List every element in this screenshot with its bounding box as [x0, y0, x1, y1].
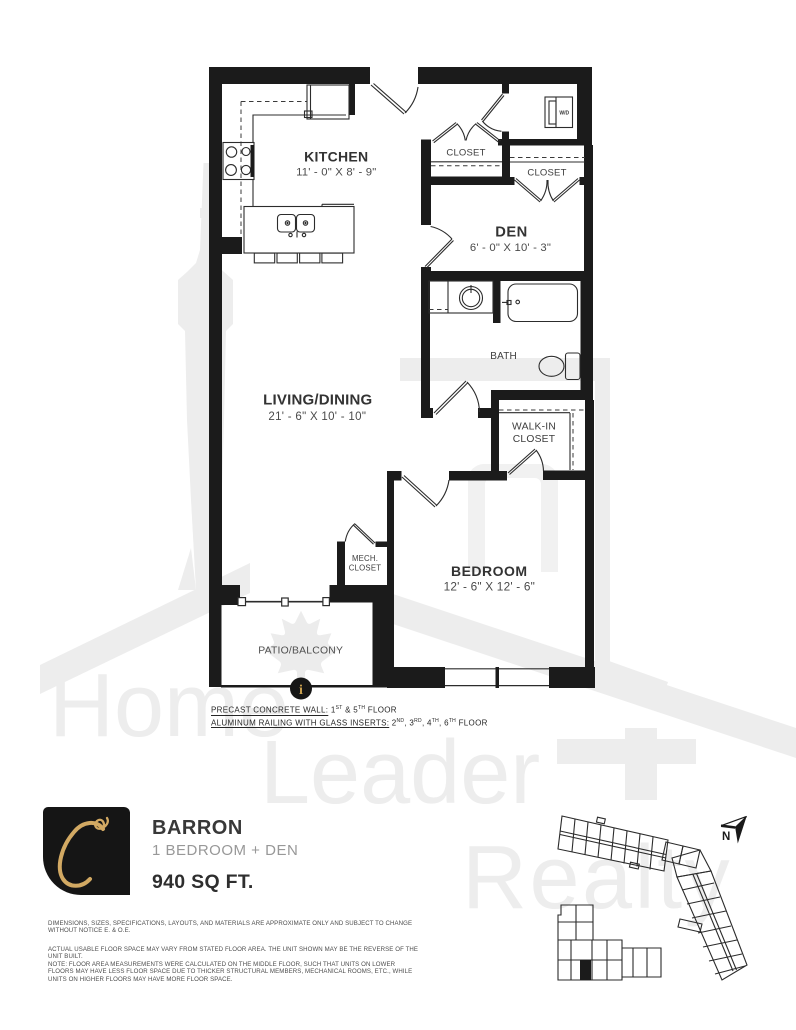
svg-text:N: N: [722, 831, 730, 843]
